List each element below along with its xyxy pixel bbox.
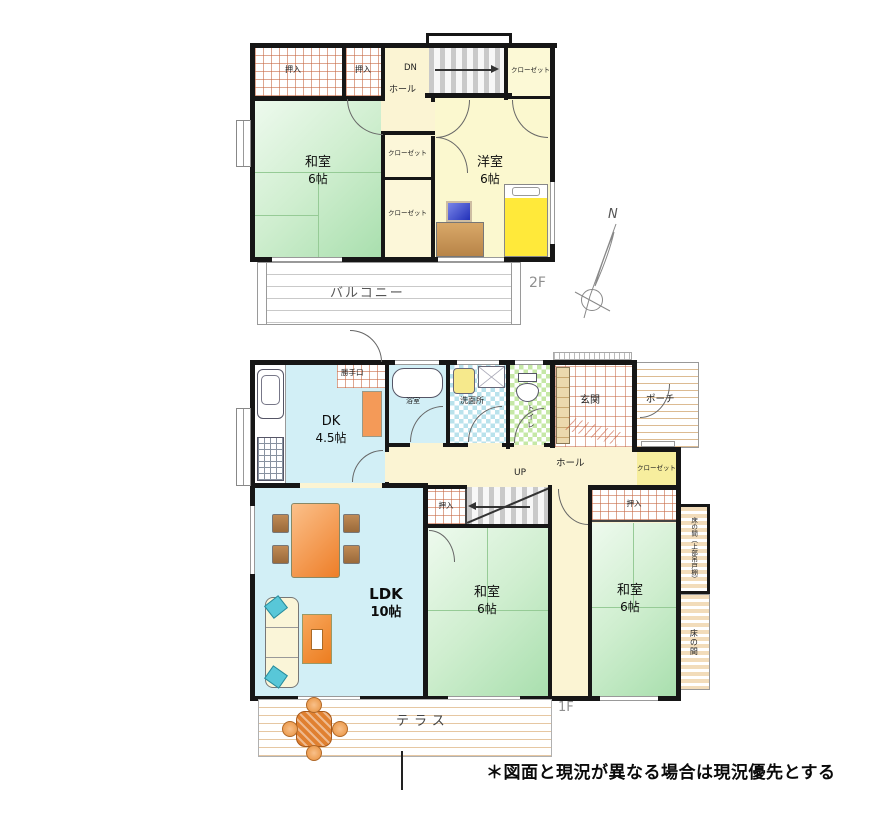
wall (382, 483, 428, 488)
kitchen-sink-basin (261, 375, 280, 405)
wall (550, 360, 555, 448)
wall (676, 447, 681, 701)
oshiire-label: 押入 (627, 500, 642, 508)
window (250, 506, 255, 574)
entrance-label: 玄関 (580, 395, 600, 406)
wall (632, 447, 681, 452)
tokonoma-upper-cabinet: 床の間（上部吊戸棚） (676, 504, 710, 594)
ldk-label: LDK 10帖 (350, 585, 422, 621)
wall (544, 443, 555, 447)
wall (502, 443, 510, 447)
tokonoma-alcove: 床の間 (676, 594, 710, 690)
wall (423, 524, 552, 528)
toilet-tank (518, 373, 537, 382)
tokonoma-upper-label: 床の間（上部吊戸棚） (689, 517, 696, 582)
floor-plan-page: 押入 押入 DN ホール クローゼット クローゼット クローゼット 和室 6帖 … (0, 0, 894, 839)
stairs-arrow-head (468, 502, 476, 510)
terrace-table (296, 711, 332, 747)
bathtub (392, 368, 443, 398)
divider-tick (401, 751, 403, 790)
door-arc (350, 330, 382, 362)
terrace-chair (282, 721, 298, 737)
terrace-label: テラス (396, 715, 450, 729)
window (457, 360, 499, 365)
wall (588, 485, 592, 697)
oshiire-label: 押入 (439, 502, 454, 510)
dining-chair (343, 514, 360, 533)
wall (423, 488, 428, 697)
window (600, 696, 658, 701)
washroom-label: 洗面所 (460, 397, 484, 406)
terrace-chair (332, 721, 348, 737)
window (515, 360, 543, 365)
dining-table (291, 503, 340, 578)
back-door-label: 勝手口 (341, 369, 364, 377)
washing-machine (453, 368, 475, 394)
sofa-seam (266, 627, 298, 628)
coffee-table-top (311, 629, 323, 650)
washbasin (478, 366, 505, 388)
dining-chair (272, 545, 289, 564)
dk-label: DK 4.5帖 (295, 414, 367, 446)
wall (450, 443, 468, 447)
eave-strip (553, 352, 632, 360)
oshiire-closet-1f-right: 押入 (592, 489, 676, 520)
stairs-arrow-line (474, 506, 530, 508)
washitsu-1f-left-label: 和室 6帖 (452, 585, 522, 617)
wall (446, 360, 450, 447)
wall (465, 489, 467, 524)
wall (423, 485, 467, 489)
hall-1f-label: ホール (556, 459, 585, 469)
bathroom-label: 浴室 (406, 398, 420, 406)
wall (506, 360, 510, 449)
stairs-up-label: UP (514, 469, 526, 479)
disclaimer-note: ＊図面と現況が異なる場合は現況優先とする (486, 758, 836, 783)
stove (257, 437, 284, 481)
wall (592, 485, 681, 490)
wall (510, 443, 514, 447)
wall (632, 360, 637, 452)
dining-chair (272, 514, 289, 533)
window (236, 408, 251, 486)
sofa-seam (266, 657, 298, 658)
floor1-label: 1F (558, 700, 574, 715)
closet-1f: クローゼット (637, 452, 676, 485)
wall (252, 483, 300, 488)
oshiire-closet-1f-left: 押入 (427, 489, 465, 524)
wall (548, 485, 552, 697)
shoe-cabinet (556, 367, 570, 444)
terrace-chair (306, 745, 322, 761)
washitsu-1f-right-label: 和室 6帖 (598, 583, 662, 615)
wall (443, 443, 450, 447)
tokonoma-label: 床の間 (689, 629, 698, 656)
dining-chair (343, 545, 360, 564)
wall (250, 360, 637, 365)
closet-label: クローゼット (637, 465, 676, 472)
wall (592, 520, 676, 522)
wall (385, 360, 389, 452)
terrace-chair (306, 697, 322, 713)
window (395, 360, 439, 365)
wall (389, 443, 410, 447)
